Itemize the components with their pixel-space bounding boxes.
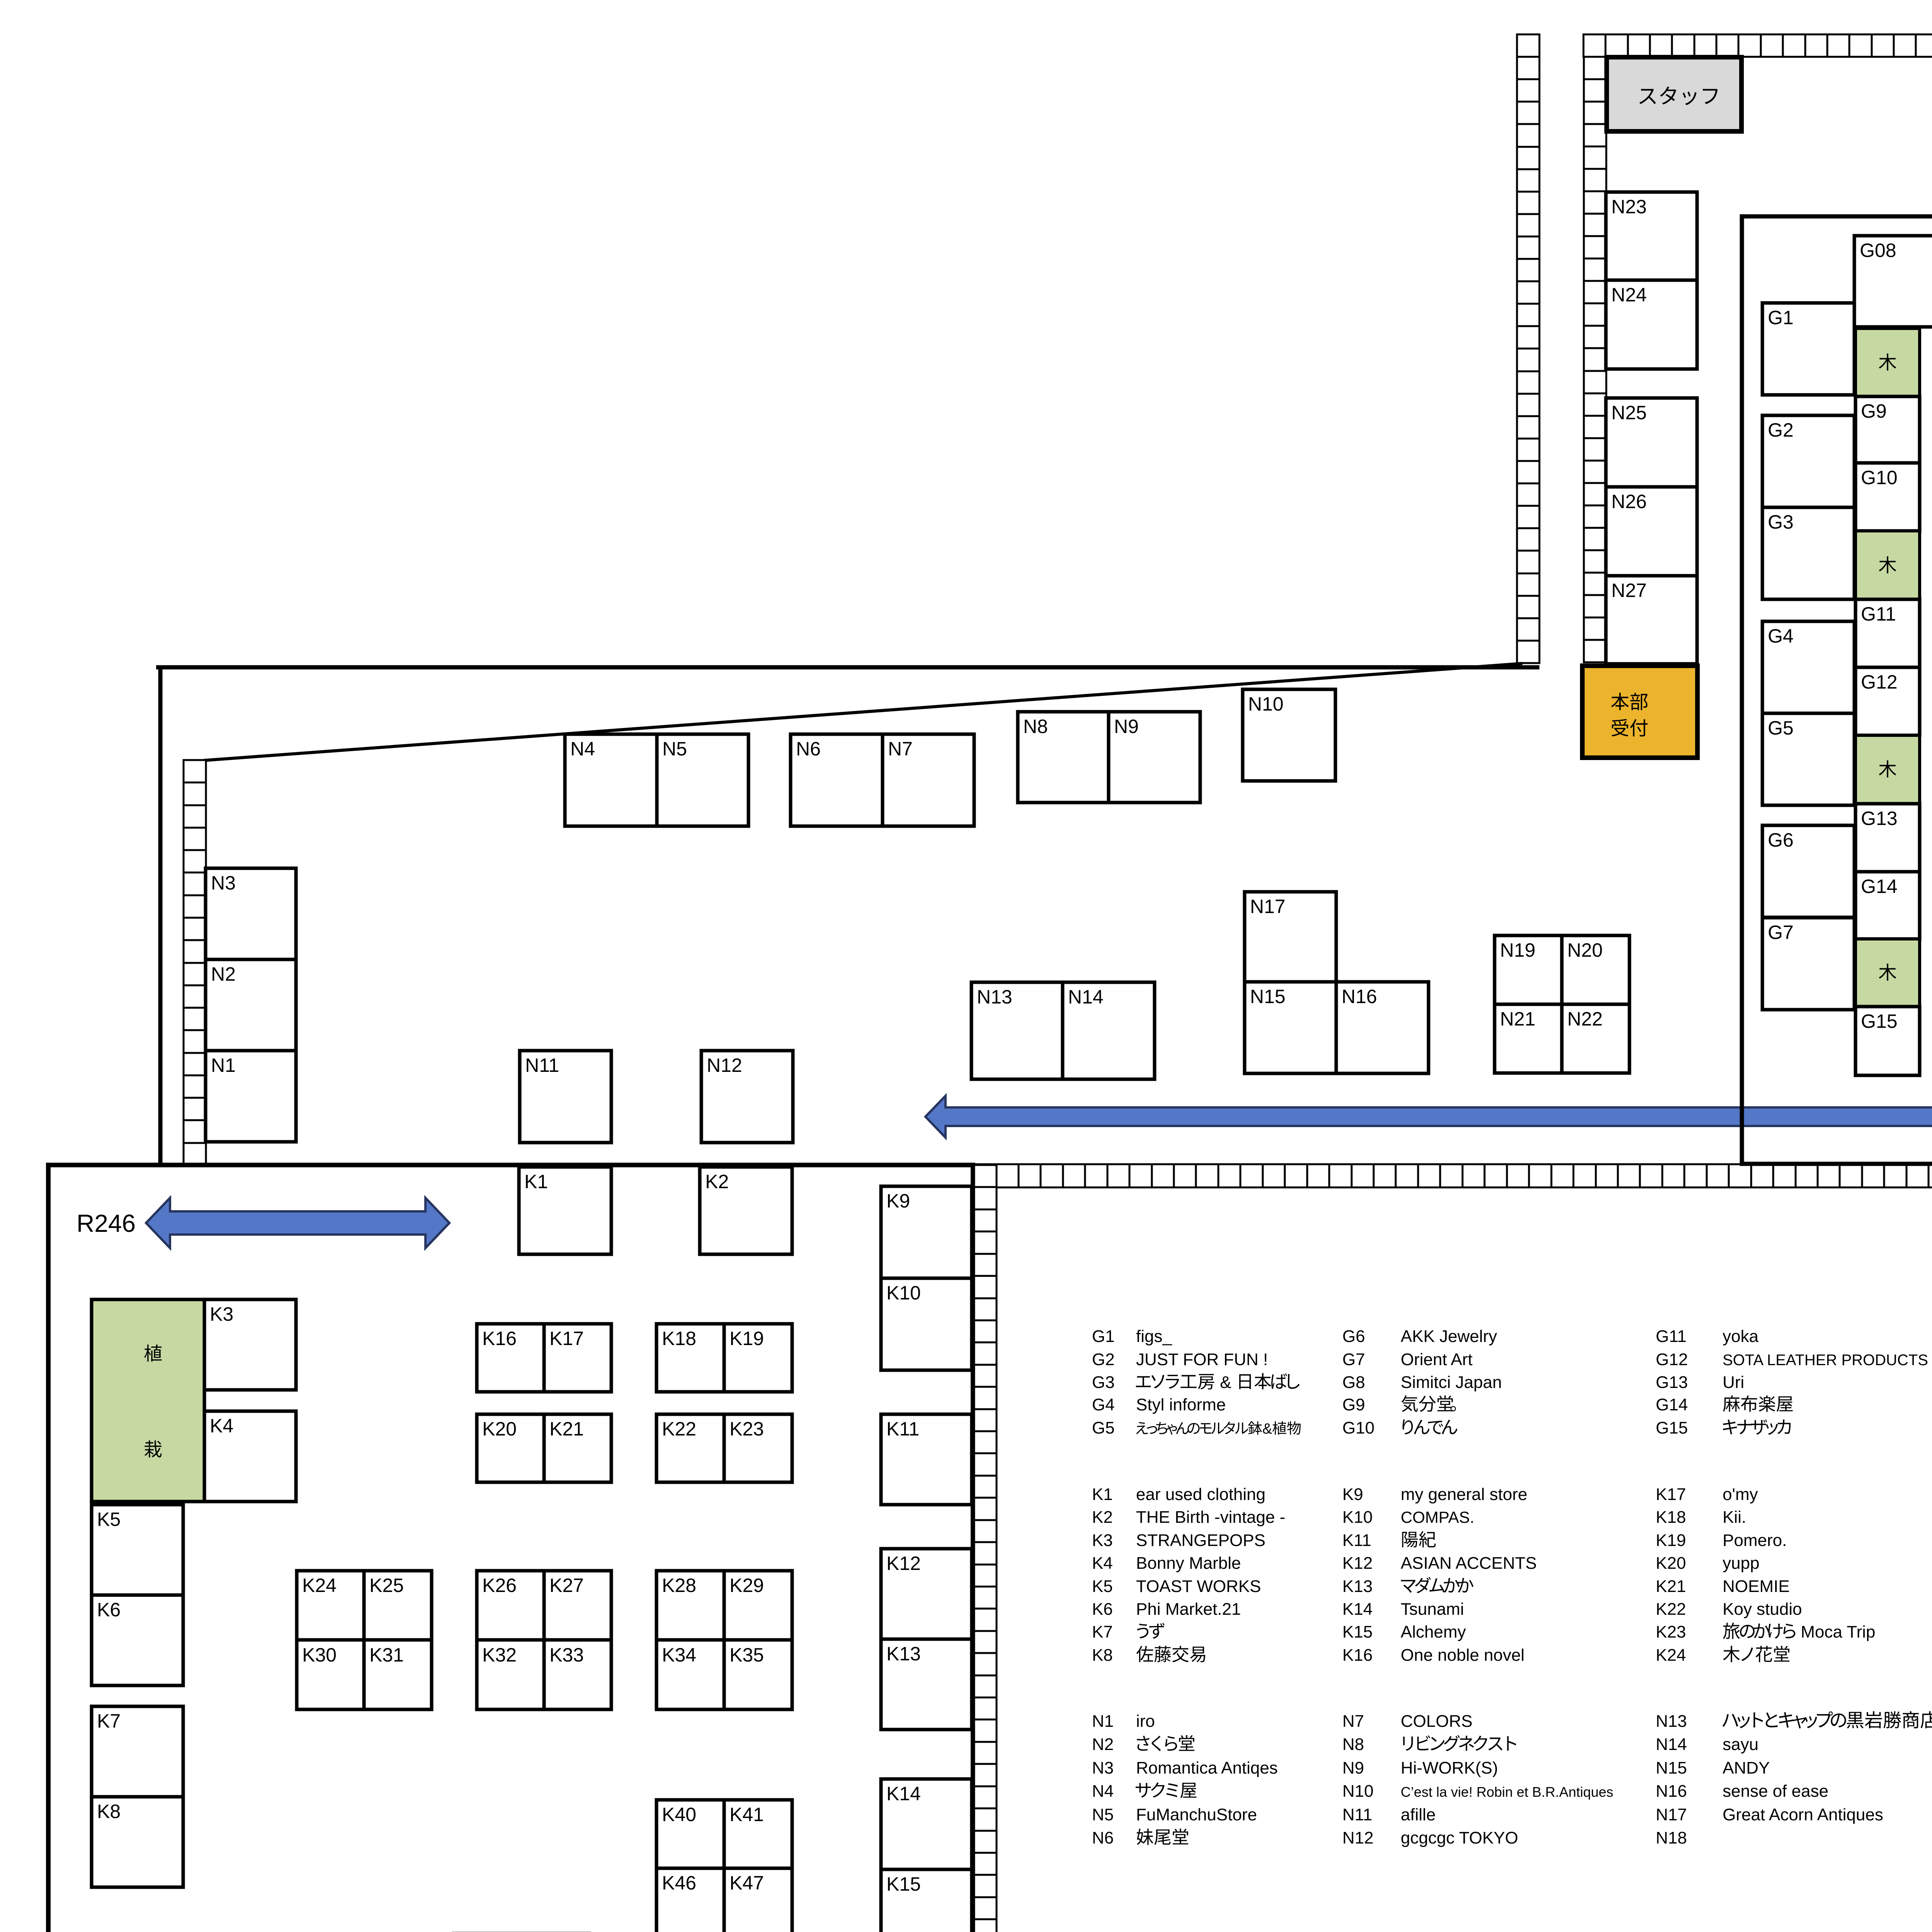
svg-text:o'my: o'my xyxy=(1723,1485,1758,1504)
svg-text:K19: K19 xyxy=(730,1328,764,1349)
svg-text:G15: G15 xyxy=(1861,1010,1898,1032)
svg-text:G15: G15 xyxy=(1656,1418,1688,1437)
svg-text:K46: K46 xyxy=(662,1872,696,1894)
svg-text:K23: K23 xyxy=(730,1418,764,1440)
svg-text:N24: N24 xyxy=(1611,284,1647,306)
svg-text:K12: K12 xyxy=(886,1553,921,1574)
svg-text:K12: K12 xyxy=(1342,1554,1372,1573)
svg-text:K29: K29 xyxy=(730,1575,764,1596)
svg-text:K21: K21 xyxy=(549,1418,584,1440)
svg-text:G13: G13 xyxy=(1656,1373,1688,1392)
svg-text:N5: N5 xyxy=(662,738,687,760)
svg-text:K16: K16 xyxy=(1342,1646,1372,1665)
svg-text:K13: K13 xyxy=(886,1643,921,1665)
svg-text:N25: N25 xyxy=(1611,402,1647,423)
svg-text:K18: K18 xyxy=(662,1328,696,1349)
svg-text:Bonny Marble: Bonny Marble xyxy=(1136,1554,1241,1573)
svg-text:Hi-WORK(S): Hi-WORK(S) xyxy=(1401,1759,1498,1777)
svg-text:K6: K6 xyxy=(1092,1600,1113,1619)
svg-text:N1: N1 xyxy=(211,1054,236,1076)
svg-text:N3: N3 xyxy=(1092,1759,1114,1777)
svg-text:Tsunami: Tsunami xyxy=(1401,1600,1464,1619)
svg-text:ANDY: ANDY xyxy=(1723,1759,1770,1777)
svg-text:G4: G4 xyxy=(1768,625,1794,647)
svg-text:K16: K16 xyxy=(482,1328,517,1349)
svg-text:K10: K10 xyxy=(886,1282,921,1304)
svg-text:STRANGEPOPS: STRANGEPOPS xyxy=(1136,1531,1265,1550)
svg-text:N27: N27 xyxy=(1611,580,1647,601)
svg-text:NOEMIE: NOEMIE xyxy=(1723,1577,1790,1596)
svg-text:N7: N7 xyxy=(1342,1712,1364,1731)
svg-text:G14: G14 xyxy=(1861,876,1898,897)
svg-text:K28: K28 xyxy=(662,1575,696,1596)
svg-text:K22: K22 xyxy=(662,1418,696,1440)
svg-text:N8: N8 xyxy=(1023,716,1048,737)
svg-text:K7: K7 xyxy=(97,1710,121,1732)
svg-text:G13: G13 xyxy=(1861,808,1898,829)
svg-text:G14: G14 xyxy=(1656,1395,1688,1414)
svg-text:K24: K24 xyxy=(1656,1646,1686,1665)
svg-text:Great Acorn Antiques: Great Acorn Antiques xyxy=(1723,1805,1883,1824)
svg-text:K2: K2 xyxy=(705,1171,729,1192)
svg-text:N13: N13 xyxy=(977,986,1012,1008)
svg-text:Phi Market.21: Phi Market.21 xyxy=(1136,1600,1241,1619)
svg-text:my general store: my general store xyxy=(1401,1485,1527,1504)
svg-text:K5: K5 xyxy=(97,1509,121,1530)
svg-text:K27: K27 xyxy=(549,1575,584,1596)
svg-text:N2: N2 xyxy=(211,963,236,985)
svg-text:G12: G12 xyxy=(1656,1350,1688,1369)
svg-text:Kii.: Kii. xyxy=(1723,1508,1746,1527)
svg-text:G2: G2 xyxy=(1768,419,1794,441)
svg-text:G9: G9 xyxy=(1861,400,1887,422)
svg-text:K22: K22 xyxy=(1656,1600,1686,1619)
svg-text:G08: G08 xyxy=(1860,240,1896,261)
svg-text:K8: K8 xyxy=(1092,1646,1113,1665)
svg-text:G9: G9 xyxy=(1342,1395,1365,1414)
svg-text:K10: K10 xyxy=(1342,1508,1372,1527)
svg-text:N11: N11 xyxy=(1342,1805,1372,1824)
svg-text:N22: N22 xyxy=(1567,1008,1603,1030)
svg-text:G4: G4 xyxy=(1092,1395,1115,1414)
svg-text:COMPAS.: COMPAS. xyxy=(1401,1508,1475,1526)
svg-text:N12: N12 xyxy=(707,1054,742,1076)
svg-text:K24: K24 xyxy=(302,1575,337,1596)
svg-text:K26: K26 xyxy=(482,1575,517,1596)
svg-text:Moca Trip: Moca Trip xyxy=(1796,1622,1875,1641)
svg-text:N17: N17 xyxy=(1656,1805,1687,1824)
svg-text:N19: N19 xyxy=(1500,939,1536,961)
svg-text:N9: N9 xyxy=(1114,716,1139,737)
svg-text:K31: K31 xyxy=(369,1644,404,1666)
svg-text:K6: K6 xyxy=(97,1599,121,1621)
svg-text:One noble novel: One noble novel xyxy=(1401,1646,1524,1665)
svg-text:K13: K13 xyxy=(1342,1577,1372,1596)
svg-text:K11: K11 xyxy=(1342,1531,1371,1550)
svg-text:K9: K9 xyxy=(886,1190,910,1212)
svg-text:K20: K20 xyxy=(1656,1554,1686,1573)
svg-text:Pomero.: Pomero. xyxy=(1723,1531,1787,1550)
svg-text:K32: K32 xyxy=(482,1644,517,1666)
svg-text:K35: K35 xyxy=(730,1644,764,1666)
svg-text:THE Birth -vintage -: THE Birth -vintage - xyxy=(1136,1508,1285,1527)
svg-text:K47: K47 xyxy=(730,1872,764,1894)
svg-text:iro: iro xyxy=(1136,1712,1155,1731)
svg-text:G5: G5 xyxy=(1092,1418,1115,1437)
svg-text:N4: N4 xyxy=(570,738,595,760)
svg-text:G6: G6 xyxy=(1342,1327,1365,1346)
svg-text:N16: N16 xyxy=(1656,1782,1687,1801)
svg-text:K17: K17 xyxy=(1656,1485,1686,1504)
svg-text:N23: N23 xyxy=(1611,196,1647,218)
svg-text:Koy studio: Koy studio xyxy=(1723,1600,1802,1619)
svg-text:G1: G1 xyxy=(1092,1327,1115,1346)
svg-text:COLORS: COLORS xyxy=(1401,1712,1473,1731)
svg-text:K1: K1 xyxy=(524,1171,548,1192)
svg-text:N10: N10 xyxy=(1342,1782,1374,1801)
svg-text:G6: G6 xyxy=(1768,829,1794,851)
svg-text:K30: K30 xyxy=(302,1644,337,1666)
svg-text:JUST FOR FUN !: JUST FOR FUN ! xyxy=(1136,1350,1268,1369)
svg-text:SOTA LEATHER PRODUCTS: SOTA LEATHER PRODUCTS xyxy=(1723,1352,1928,1369)
svg-text:K3: K3 xyxy=(1092,1531,1113,1550)
svg-text:N6: N6 xyxy=(1092,1828,1114,1847)
svg-text:R246: R246 xyxy=(77,1209,136,1237)
svg-text:G7: G7 xyxy=(1768,922,1794,943)
svg-text:K34: K34 xyxy=(662,1644,696,1666)
svg-text:K18: K18 xyxy=(1656,1508,1686,1527)
svg-text:N10: N10 xyxy=(1248,693,1284,715)
svg-text:ear used clothing: ear used clothing xyxy=(1136,1485,1265,1504)
svg-text:G7: G7 xyxy=(1342,1350,1365,1369)
svg-text:K41: K41 xyxy=(730,1804,764,1825)
svg-text:gcgcgc TOKYO: gcgcgc TOKYO xyxy=(1401,1828,1518,1847)
svg-text:K14: K14 xyxy=(886,1783,921,1804)
svg-text:K15: K15 xyxy=(886,1873,921,1895)
svg-text:afille: afille xyxy=(1401,1805,1436,1824)
svg-text:K5: K5 xyxy=(1092,1577,1113,1596)
svg-text:K14: K14 xyxy=(1342,1600,1372,1619)
svg-text:K11: K11 xyxy=(886,1418,919,1440)
svg-text:K15: K15 xyxy=(1342,1622,1372,1641)
svg-text:K2: K2 xyxy=(1092,1508,1113,1527)
svg-text:N9: N9 xyxy=(1342,1759,1364,1777)
svg-text:figs_: figs_ xyxy=(1136,1327,1172,1346)
svg-text:N2: N2 xyxy=(1092,1735,1114,1754)
svg-text:G8: G8 xyxy=(1342,1373,1365,1392)
svg-text:TOAST WORKS: TOAST WORKS xyxy=(1136,1577,1261,1596)
svg-text:FuManchuStore: FuManchuStore xyxy=(1136,1805,1257,1824)
svg-text:N17: N17 xyxy=(1250,896,1286,917)
svg-text:G12: G12 xyxy=(1861,671,1898,693)
svg-text:N11: N11 xyxy=(525,1054,559,1076)
svg-text:K3: K3 xyxy=(210,1303,233,1325)
svg-text:Uri: Uri xyxy=(1723,1373,1744,1392)
svg-text:&: & xyxy=(1215,1373,1236,1392)
svg-text:&: & xyxy=(1262,1421,1272,1437)
svg-text:G3: G3 xyxy=(1092,1373,1115,1392)
svg-text:Orient Art: Orient Art xyxy=(1401,1350,1473,1369)
svg-text:K19: K19 xyxy=(1656,1531,1686,1550)
svg-text:K1: K1 xyxy=(1092,1485,1113,1504)
svg-text:N4: N4 xyxy=(1092,1782,1114,1801)
svg-text:G2: G2 xyxy=(1092,1350,1115,1369)
svg-text:N14: N14 xyxy=(1656,1735,1687,1754)
svg-text:G5: G5 xyxy=(1768,717,1794,739)
svg-text:K20: K20 xyxy=(482,1418,517,1440)
svg-text:N20: N20 xyxy=(1567,939,1603,961)
svg-text:N14: N14 xyxy=(1068,986,1104,1008)
svg-text:N16: N16 xyxy=(1342,986,1377,1007)
svg-text:K7: K7 xyxy=(1092,1622,1113,1641)
svg-text:N3: N3 xyxy=(211,872,236,894)
svg-text:G1: G1 xyxy=(1768,307,1794,328)
svg-text:Romantica Antiqes: Romantica Antiqes xyxy=(1136,1759,1278,1777)
svg-text:sayu: sayu xyxy=(1723,1735,1759,1754)
svg-text:AKK Jewelry: AKK Jewelry xyxy=(1401,1327,1497,1346)
svg-text:sense of ease: sense of ease xyxy=(1723,1782,1828,1801)
svg-text:Styl informe: Styl informe xyxy=(1136,1395,1226,1414)
svg-text:K25: K25 xyxy=(369,1575,404,1596)
svg-text:K4: K4 xyxy=(210,1415,233,1437)
svg-text:yoka: yoka xyxy=(1723,1327,1759,1346)
svg-text:ASIAN ACCENTS: ASIAN ACCENTS xyxy=(1401,1554,1537,1573)
svg-text:G10: G10 xyxy=(1861,467,1898,488)
svg-text:yupp: yupp xyxy=(1723,1554,1759,1573)
svg-text:N6: N6 xyxy=(796,738,821,760)
svg-text:G11: G11 xyxy=(1656,1327,1687,1346)
svg-text:N1: N1 xyxy=(1092,1712,1114,1731)
svg-text:K23: K23 xyxy=(1656,1622,1686,1641)
svg-text:K8: K8 xyxy=(97,1801,121,1822)
svg-text:K33: K33 xyxy=(549,1644,584,1666)
svg-text:G10: G10 xyxy=(1342,1418,1374,1437)
svg-text:K17: K17 xyxy=(549,1328,584,1349)
svg-text:Alchemy: Alchemy xyxy=(1401,1622,1466,1641)
svg-text:N13: N13 xyxy=(1656,1712,1687,1731)
svg-text:Simitci Japan: Simitci Japan xyxy=(1401,1373,1502,1392)
svg-text:C’est la vie! Robin et B.R.Ant: C’est la vie! Robin et B.R.Antiques xyxy=(1401,1784,1613,1800)
svg-text:N18: N18 xyxy=(1656,1828,1687,1847)
svg-text:N15: N15 xyxy=(1250,986,1286,1007)
svg-text:N7: N7 xyxy=(888,738,913,760)
svg-text:N26: N26 xyxy=(1611,491,1647,512)
svg-text:N8: N8 xyxy=(1342,1735,1364,1754)
svg-text:G3: G3 xyxy=(1768,511,1794,533)
svg-text:K21: K21 xyxy=(1656,1577,1686,1596)
svg-text:K9: K9 xyxy=(1342,1485,1363,1504)
svg-text:K40: K40 xyxy=(662,1804,696,1825)
svg-text:N15: N15 xyxy=(1656,1759,1687,1777)
svg-text:N12: N12 xyxy=(1342,1828,1374,1847)
svg-text:N21: N21 xyxy=(1500,1008,1536,1030)
svg-text:N5: N5 xyxy=(1092,1805,1114,1824)
svg-text:G11: G11 xyxy=(1861,603,1896,625)
svg-text:K4: K4 xyxy=(1092,1554,1113,1573)
